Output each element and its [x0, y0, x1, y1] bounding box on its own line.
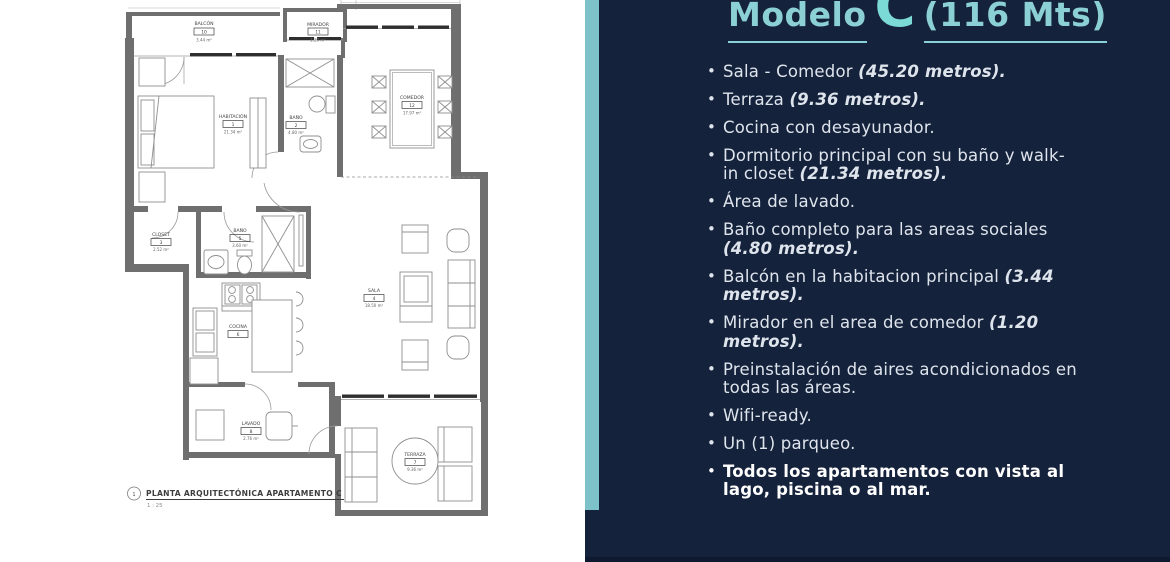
- svg-text:HABITACIÓN: HABITACIÓN: [219, 113, 247, 120]
- kitchen-fixtures: [190, 283, 303, 384]
- svg-text:COMEDOR: COMEDOR: [400, 95, 425, 101]
- svg-text:3.44 m²: 3.44 m²: [196, 38, 212, 43]
- svg-text:1.20 m²: 1.20 m²: [310, 38, 326, 43]
- feature-item-vista: Todos los apartamentos con vista al lago…: [707, 463, 1079, 500]
- svg-text:18.50 m²: 18.50 m²: [365, 303, 384, 308]
- room-label-habitacion: HABITACIÓN 1 21.34 m²: [219, 113, 247, 135]
- svg-text:1: 1: [232, 122, 235, 128]
- svg-text:MIRADOR: MIRADOR: [307, 22, 330, 28]
- room-label-balcon: BALCÓN 10 3.44 m²: [194, 20, 214, 43]
- svg-text:2.52 m²: 2.52 m²: [153, 247, 169, 252]
- svg-text:COCINA: COCINA: [229, 324, 248, 330]
- svg-text:BAÑO: BAÑO: [289, 114, 303, 121]
- floor-plan-area: BALCÓN 10 3.44 m² MIRADOR 11 1.20 m² COM…: [0, 0, 585, 562]
- living-room-furniture: [400, 225, 475, 370]
- bathroom2-fixtures: [204, 215, 303, 274]
- svg-text:6: 6: [237, 332, 240, 338]
- svg-text:4.80 m²: 4.80 m²: [288, 130, 304, 135]
- room-label-lavado: LAVADO 8 2.76 m²: [241, 421, 261, 441]
- svg-text:3: 3: [160, 240, 163, 246]
- room-label-banio2: BAÑO 5 3.60 m²: [230, 227, 250, 248]
- svg-text:7: 7: [414, 460, 417, 466]
- svg-text:17.97 m²: 17.97 m²: [403, 111, 422, 116]
- plan-caption-text: PLANTA ARQUITECTÓNICA APARTAMENTO C: [146, 489, 342, 498]
- svg-text:CLOSET: CLOSET: [152, 232, 170, 238]
- feature-item-parqueo: Un (1) parqueo.: [707, 435, 1079, 453]
- svg-text:11: 11: [315, 29, 321, 35]
- room-label-banio1: BAÑO 2 4.80 m²: [286, 114, 306, 135]
- svg-text:5: 5: [239, 236, 242, 242]
- svg-text:8: 8: [250, 429, 253, 435]
- svg-text:9.36 m²: 9.36 m²: [407, 467, 423, 472]
- brochure-page: BALCÓN 10 3.44 m² MIRADOR 11 1.20 m² COM…: [0, 0, 1170, 562]
- svg-text:TERRAZA: TERRAZA: [403, 452, 426, 458]
- svg-text:LAVADO: LAVADO: [242, 421, 261, 427]
- title-modelo: Modelo: [728, 0, 867, 43]
- svg-text:SALA: SALA: [368, 288, 381, 294]
- svg-text:21.34 m²: 21.34 m²: [224, 130, 243, 135]
- feature-item-sala-comedor: Sala - Comedor (45.20 metros).: [707, 63, 1079, 81]
- room-label-closet: CLOSET 3 2.52 m²: [151, 232, 171, 252]
- svg-text:1: 1: [132, 492, 135, 498]
- title-letter-c: C: [875, 0, 916, 31]
- feature-item-lavado: Área de lavado.: [707, 193, 1079, 211]
- feature-item-aires: Preinstalación de aires acondicionados e…: [707, 361, 1079, 398]
- svg-text:2.76 m²: 2.76 m²: [243, 436, 259, 441]
- room-label-cocina: COCINA 6: [228, 324, 248, 338]
- plan-caption: 1 PLANTA ARQUITECTÓNICA APARTAMENTO C 1 …: [128, 487, 345, 509]
- svg-text:BALCÓN: BALCÓN: [194, 20, 213, 27]
- feature-item-cocina: Cocina con desayunador.: [707, 119, 1079, 137]
- bottom-divider: [585, 557, 1170, 562]
- svg-text:12: 12: [409, 103, 415, 109]
- svg-text:10: 10: [201, 29, 207, 35]
- feature-item-wifi: Wifi-ready.: [707, 407, 1079, 425]
- feature-list: Sala - Comedor (45.20 metros). Terraza (…: [585, 63, 1079, 500]
- bathroom1-fixtures: [286, 59, 335, 152]
- feature-item-terraza: Terraza (9.36 metros).: [707, 91, 1079, 109]
- room-label-sala: SALA 4 18.50 m²: [364, 288, 384, 308]
- dining-set: [372, 70, 452, 148]
- terrace-furniture: [345, 427, 472, 502]
- bedroom-furniture: [138, 58, 266, 202]
- feature-item-balcon: Balcón en la habitacion principal (3.44 …: [707, 268, 1079, 305]
- title-size: (116 Mts): [924, 0, 1107, 43]
- feature-item-dormitorio: Dormitorio principal con su baño y walk-…: [707, 147, 1079, 184]
- floor-plan: BALCÓN 10 3.44 m² MIRADOR 11 1.20 m² COM…: [0, 0, 585, 562]
- feature-item-banio-social: Baño completo para las areas sociales (4…: [707, 221, 1079, 258]
- svg-text:BAÑO: BAÑO: [233, 227, 247, 234]
- svg-text:2: 2: [295, 123, 298, 129]
- info-panel: Modelo C (116 Mts) Sala - Comedor (45.20…: [585, 0, 1170, 562]
- teal-stripe: [585, 0, 599, 510]
- svg-text:4: 4: [373, 296, 376, 302]
- svg-text:3.60 m²: 3.60 m²: [232, 243, 248, 248]
- plan-scale: 1 : 25: [147, 503, 163, 509]
- page-title: Modelo C (116 Mts): [728, 0, 1170, 43]
- feature-item-mirador: Mirador en el area de comedor (1.20 metr…: [707, 314, 1079, 351]
